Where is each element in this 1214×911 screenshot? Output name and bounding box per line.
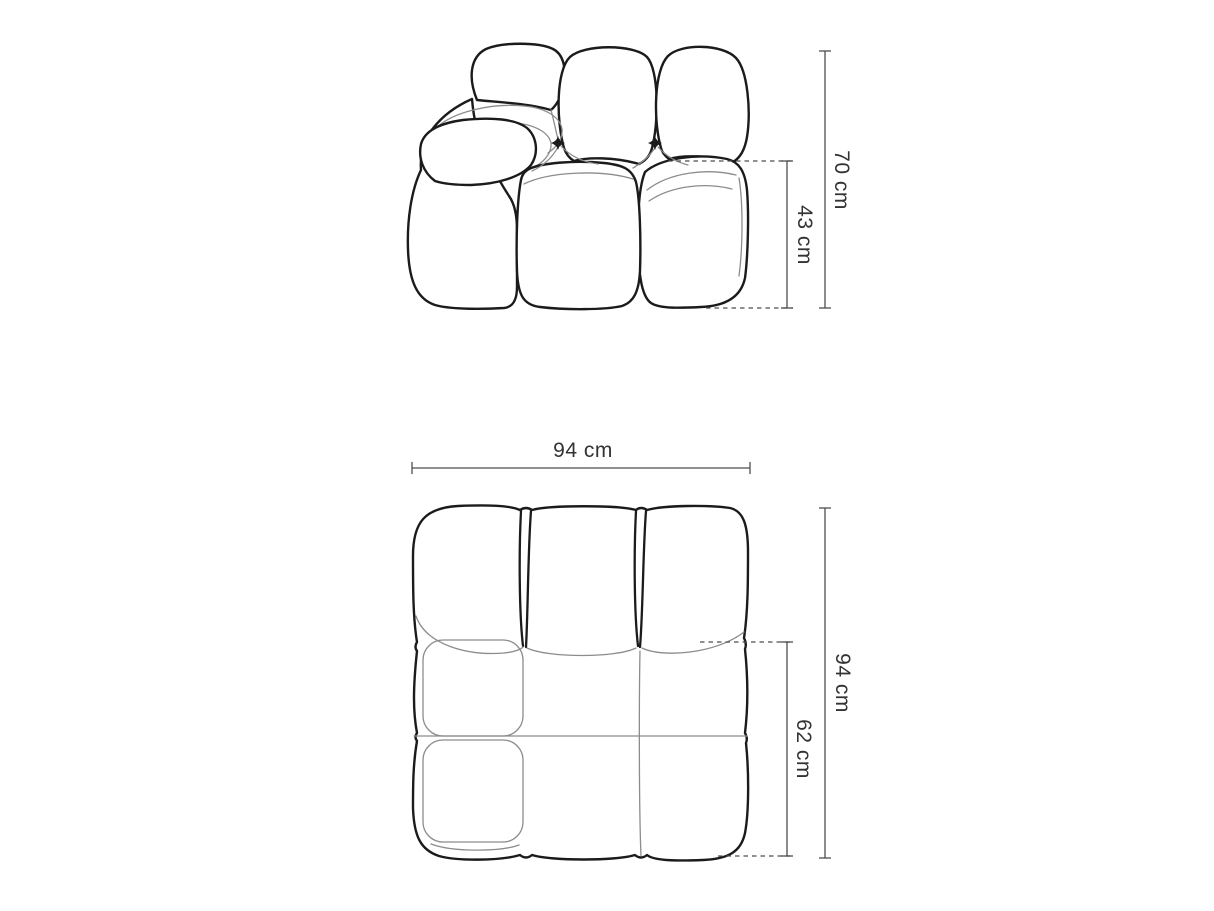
- seat-section-right: [638, 157, 748, 308]
- back-cushion-center: [559, 47, 657, 164]
- armrest-pillow: [420, 119, 536, 185]
- top-total-depth-label: 94 cm: [830, 653, 854, 713]
- seat-cushion-center: [517, 162, 641, 309]
- sofa-dimension-diagram: 70 cm 43 cm 94 cm 94 cm 62 cm: [0, 0, 1214, 911]
- top-view-outline: [413, 505, 748, 860]
- top-seat-depth-label: 62 cm: [791, 719, 815, 779]
- top-view-width-dimension: [412, 462, 750, 474]
- side-seat-height-label: 43 cm: [792, 205, 816, 265]
- top-view-drawing: [412, 462, 831, 860]
- back-cushion-left: [472, 44, 565, 110]
- top-width-label: 94 cm: [553, 439, 613, 463]
- side-view-drawing: [408, 44, 831, 309]
- side-total-height-label: 70 cm: [829, 150, 853, 210]
- back-cushion-right: [656, 47, 749, 162]
